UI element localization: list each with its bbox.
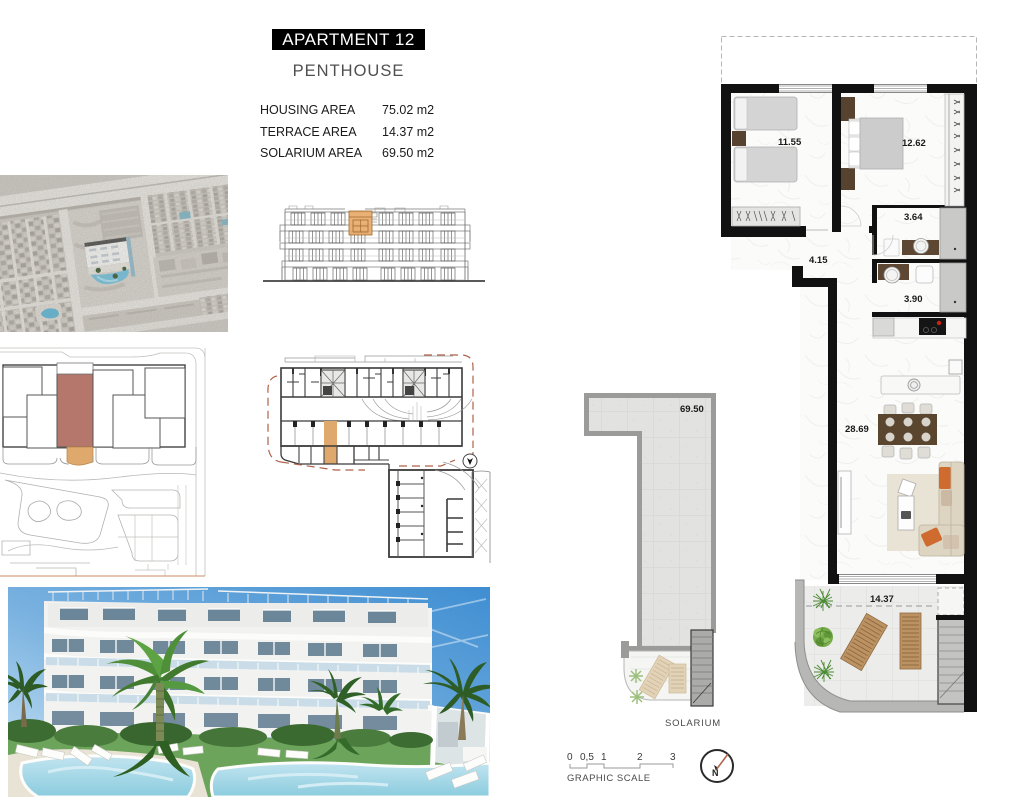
- svg-text:11.55: 11.55: [778, 137, 802, 148]
- svg-text:0: 0: [567, 752, 573, 763]
- svg-text:12.62: 12.62: [902, 138, 926, 149]
- svg-text:28.69: 28.69: [845, 424, 869, 435]
- svg-text:N: N: [712, 768, 719, 778]
- svg-text:1: 1: [601, 752, 607, 763]
- svg-text:4.15: 4.15: [809, 255, 828, 266]
- svg-text:2: 2: [637, 752, 643, 763]
- svg-text:3: 3: [670, 752, 676, 763]
- svg-text:GRAPHIC SCALE: GRAPHIC SCALE: [567, 773, 651, 784]
- svg-text:14.37: 14.37: [870, 594, 894, 605]
- svg-text:3.64: 3.64: [904, 212, 923, 223]
- svg-text:0,5: 0,5: [580, 752, 594, 763]
- svg-text:69.50: 69.50: [680, 404, 704, 415]
- svg-text:3.90: 3.90: [904, 294, 923, 305]
